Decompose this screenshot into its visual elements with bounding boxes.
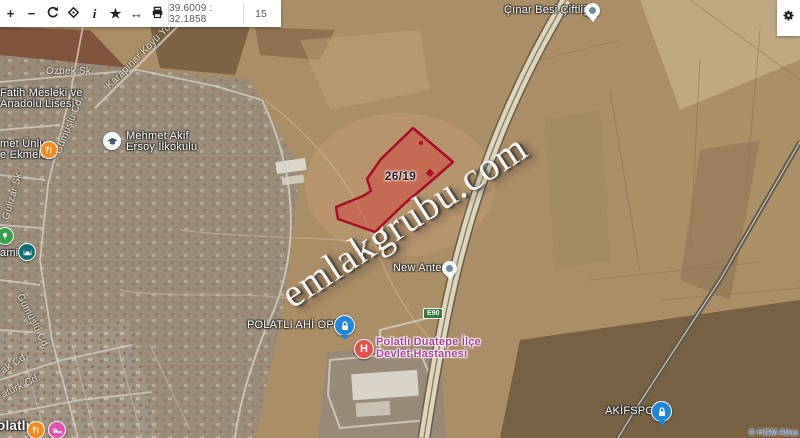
label-cinar-besi-ciftligi: Çınar Besi Çiftliği — [504, 5, 592, 16]
label-fatih-lisesi-line2: Anadolu Lisesi — [0, 99, 74, 110]
map-toolbar: + − i ★ ↔ — [0, 0, 281, 27]
settings-button[interactable] — [777, 0, 800, 36]
padlock-icon — [334, 315, 355, 336]
poi-pin-new-antes[interactable] — [442, 261, 457, 276]
label-cami: ami — [0, 248, 18, 259]
label-mehmet-akif-line2: Ersoy İlkokulu — [126, 142, 197, 153]
poi-pin-restaurant-polatli[interactable] — [27, 421, 45, 438]
zoom-in-button[interactable]: + — [0, 0, 21, 27]
poi-pin-optik[interactable] — [334, 315, 355, 336]
info-button[interactable]: i — [84, 0, 105, 27]
refresh-icon — [45, 5, 60, 23]
refresh-button[interactable] — [42, 0, 63, 27]
poi-pin-restaurant-unlu[interactable] — [40, 141, 58, 159]
swap-extent-button[interactable]: ↔ — [126, 0, 147, 27]
poi-pin-hospital[interactable]: H — [354, 339, 374, 359]
restaurant-icon — [27, 421, 45, 438]
e90-route-shield: E90 — [423, 308, 443, 319]
poi-pin-cinar-besi[interactable] — [585, 3, 600, 18]
map-canvas[interactable]: 26/19 Çınar Besi Çiftliği Özbek Sk. Kara… — [0, 0, 800, 438]
label-polatli: olatlı — [0, 420, 30, 431]
padlock-icon — [651, 401, 672, 422]
place-pin-icon — [585, 3, 600, 18]
map-attribution: © HGM Atlas — [749, 427, 798, 437]
label-hastane-line2: Devlet Hastanesi — [376, 349, 467, 360]
label-new-antes: New Antes — [393, 263, 447, 274]
poi-pin-akifspor[interactable] — [651, 401, 672, 422]
parcel-number-label: 26/19 — [385, 172, 416, 183]
label-ozbek-sk: Özbek Sk. — [46, 66, 94, 77]
bed-icon — [48, 421, 66, 438]
print-button[interactable] — [147, 0, 168, 27]
tree-icon — [0, 227, 14, 245]
poi-pin-school[interactable] — [103, 132, 121, 150]
mosque-icon — [18, 243, 36, 261]
printer-icon — [150, 5, 165, 23]
zoom-level-display: 15 — [244, 0, 278, 27]
label-hastane-line1: Polatlı Duatepe İlçe — [376, 337, 481, 348]
favorite-button[interactable]: ★ — [105, 0, 126, 27]
locate-icon — [66, 5, 81, 23]
poi-pin-hotel[interactable] — [48, 421, 66, 438]
gear-icon — [782, 9, 795, 27]
zoom-out-button[interactable]: − — [21, 0, 42, 27]
hospital-h-icon: H — [354, 339, 374, 359]
restaurant-icon — [40, 141, 58, 159]
coordinates-display: 39.6009 : 32.1858 — [169, 0, 243, 27]
graduation-cap-icon — [103, 132, 121, 150]
poi-pin-mosque[interactable] — [18, 243, 36, 261]
poi-pin-park[interactable] — [0, 227, 14, 245]
place-pin-icon — [442, 261, 457, 276]
locate-button[interactable] — [63, 0, 84, 27]
parcel-point-marker — [419, 141, 423, 145]
